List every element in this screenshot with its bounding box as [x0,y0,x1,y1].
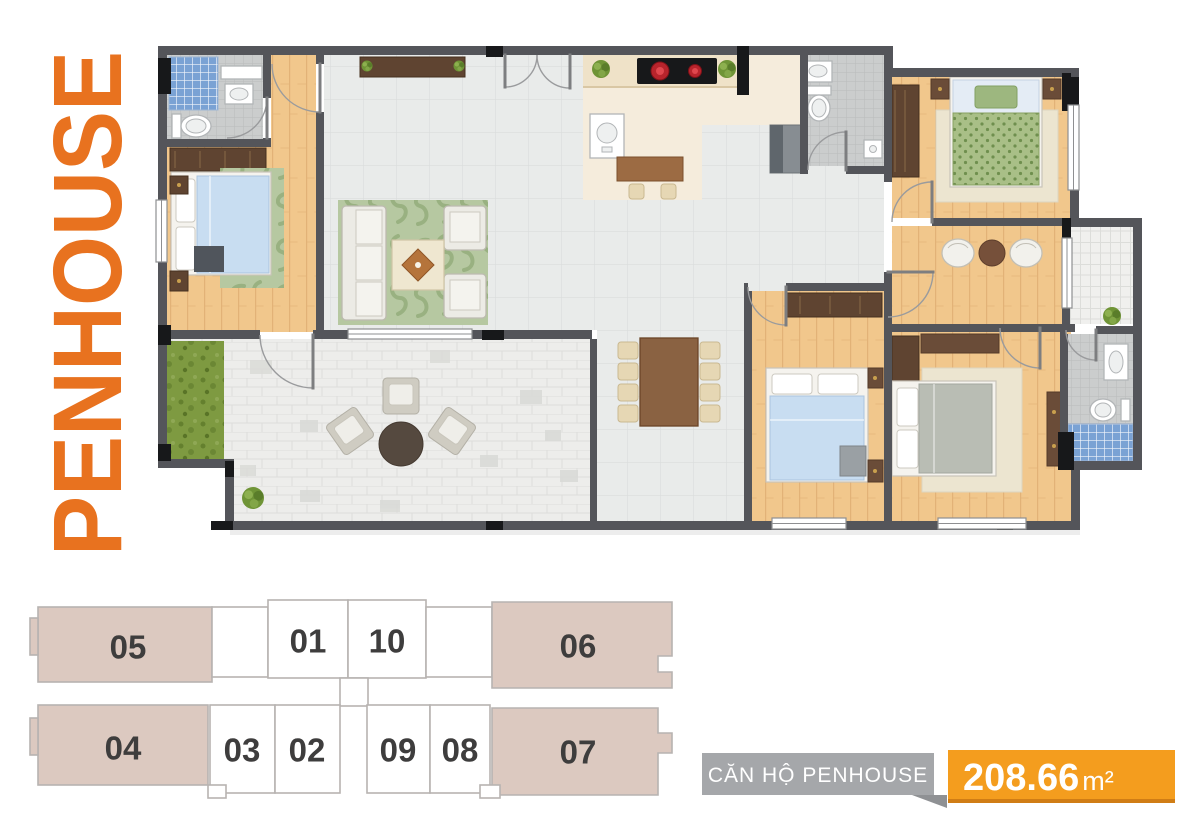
keyplan-unit-label: 03 [224,732,261,769]
keyplan-unit-label: 09 [380,732,417,769]
dresser [921,334,999,353]
plant-icon [592,60,610,78]
desk [840,446,866,476]
balcony [1103,307,1121,325]
bar-stool [629,184,644,199]
balcony-floor [1070,227,1133,324]
window [348,329,472,339]
keyplan-core [340,678,368,706]
keyplan-unit-label: 07 [560,734,597,771]
keyplan-unit-label: 06 [560,628,597,665]
plant-icon [1103,307,1121,325]
sitting-nook [942,239,1042,267]
wardrobe [170,148,266,171]
penhouse-vertical-label: PENHOUSE [33,51,142,556]
armchair [444,274,486,318]
window [938,518,1026,529]
kitchen-island [617,157,683,181]
keyplan: 05 01 10 06 04 03 02 09 08 07 [30,600,672,798]
armchair [444,206,486,250]
terrace-table [379,422,423,466]
bar-stool [661,184,676,199]
floorplan [156,46,1142,535]
bed [950,77,1042,187]
plant-icon [718,60,736,78]
keyplan-unit-label: 05 [110,629,147,666]
page: PENHOUSE [0,0,1200,838]
window [156,200,167,262]
window [1062,238,1072,308]
keyplan-unit-label: 04 [105,730,142,767]
window [1068,105,1079,190]
bedroom1 [170,148,284,291]
keyplan-unit-label: 02 [289,732,326,769]
fridge [770,125,801,173]
sitting-nook-floor [892,226,1062,324]
window [772,518,846,529]
plan-shadow [230,530,1080,535]
shower-icon [169,57,218,110]
shower-icon [1068,424,1133,461]
round-table [979,240,1005,266]
toilet-icon [172,114,211,138]
toilet-icon [807,86,831,121]
caption-name-label: CĂN HỘ PENHOUSE [708,764,928,787]
keyplan-cell [426,607,492,677]
wardrobe [892,336,919,382]
keyplan-unit-label: 10 [369,623,406,660]
keyplan-unit-label: 08 [442,732,479,769]
shower-drain [864,140,882,158]
sink-icon [225,84,253,104]
caption-bar: CĂN HỘ PENHOUSE 208.66m² [702,750,1175,808]
keyplan-cell [212,607,268,677]
keyplan-unit-label: 01 [290,623,327,660]
bed [892,381,996,476]
caption-tail [912,795,947,808]
floorplan-image: PENHOUSE [0,0,1200,838]
dining-table [640,338,698,426]
plant-icon [362,61,373,72]
grass-strip [167,341,224,459]
terrace-chair [383,378,419,414]
plant-icon [454,61,465,72]
toilet-icon [1090,399,1130,421]
sofa [342,206,386,320]
coffee-table [392,240,444,290]
shelf [221,66,262,79]
bench [194,246,224,272]
cooktop-icon [637,58,717,84]
tv-console [360,57,465,77]
kitchen-sink [590,114,624,158]
plant-icon [242,487,264,509]
